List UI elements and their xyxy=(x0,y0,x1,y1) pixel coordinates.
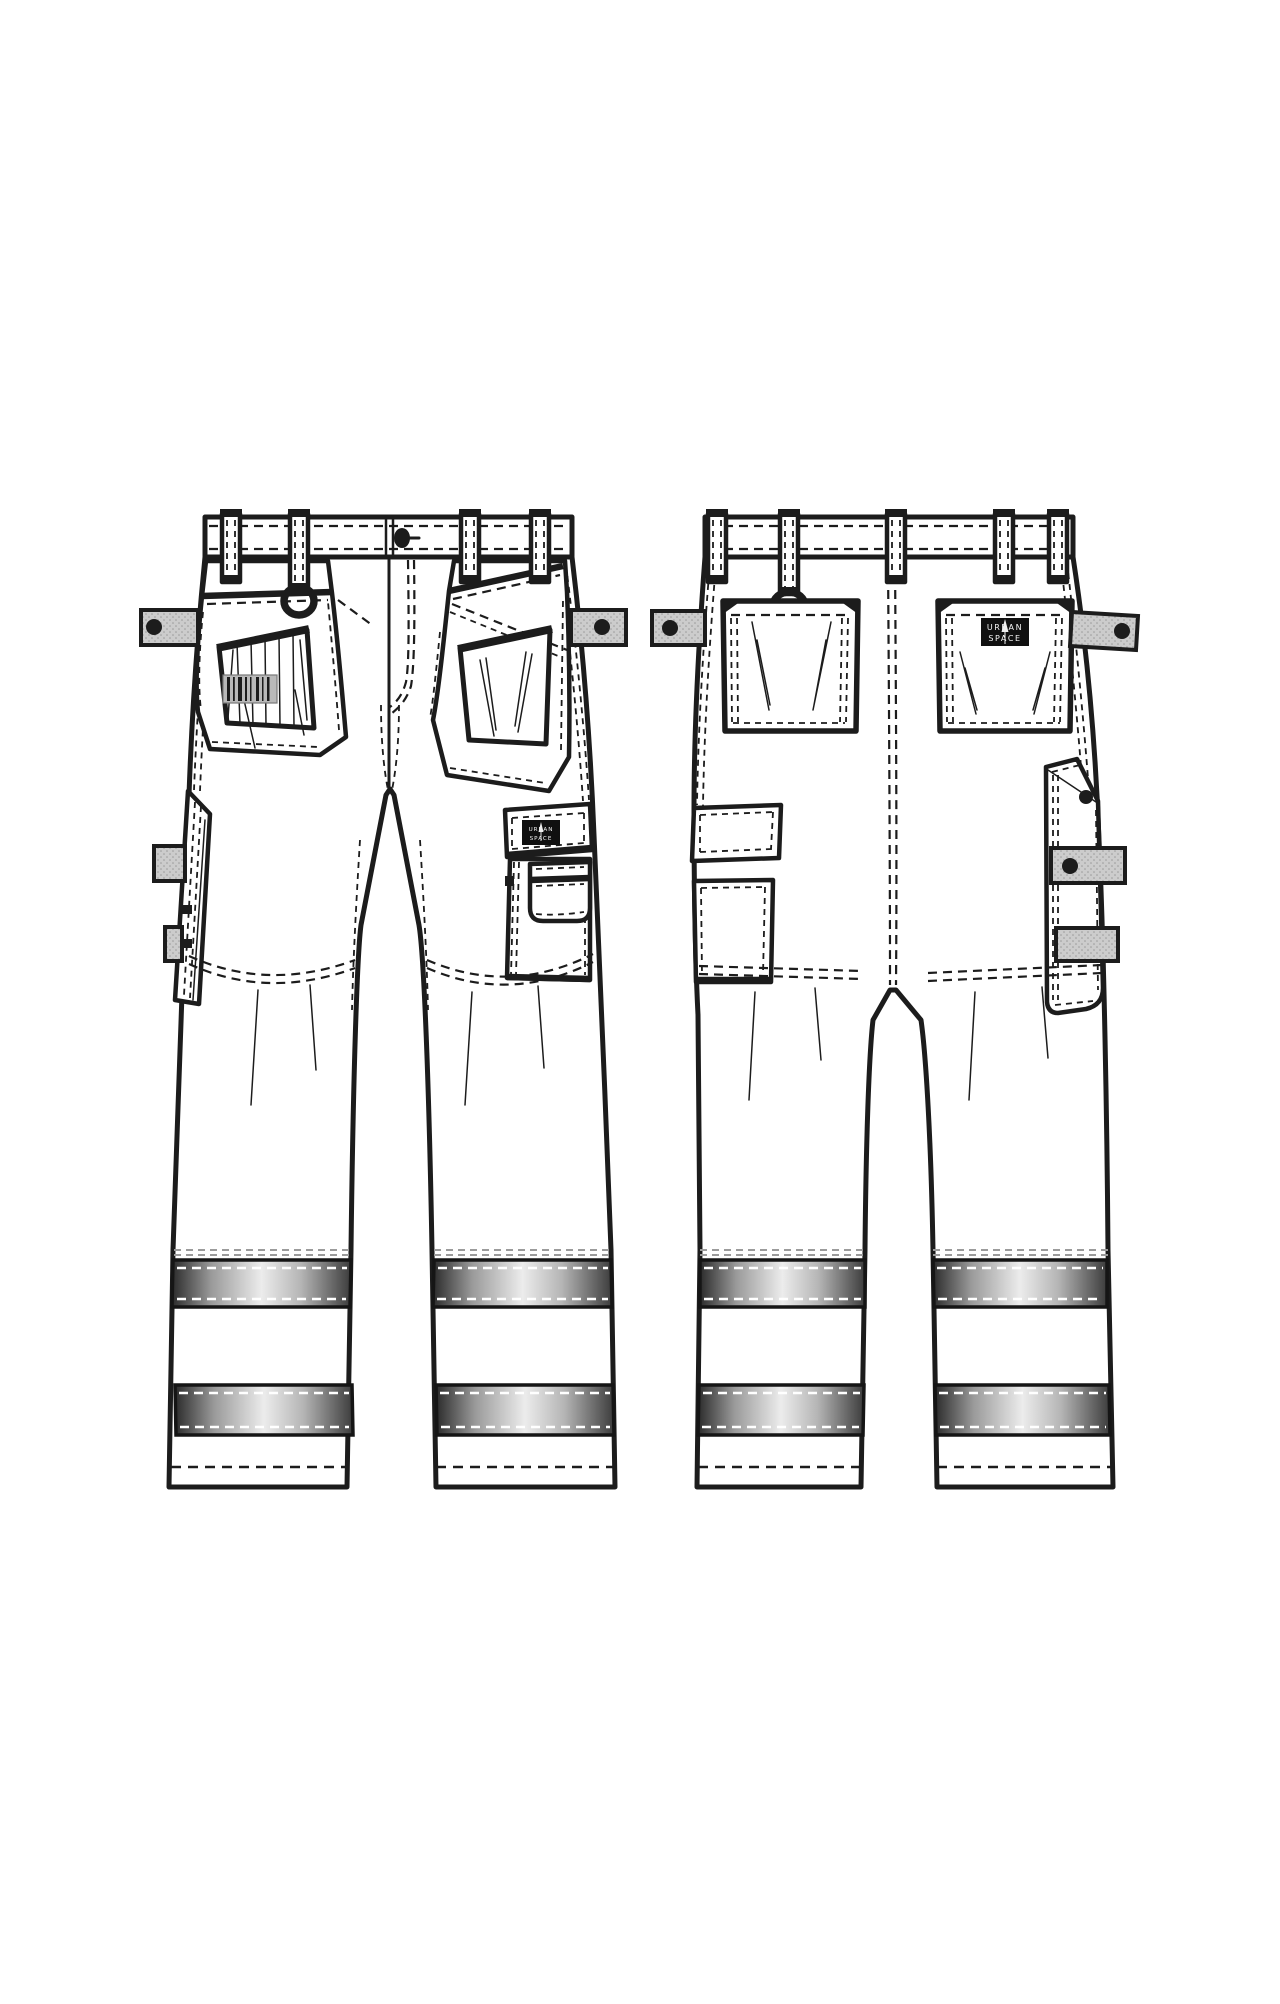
snap-dot xyxy=(1062,858,1078,874)
side-tab-front-right xyxy=(571,610,626,645)
cargo-flap: URBAN SPACE xyxy=(505,804,592,857)
side-tab-small xyxy=(1056,928,1118,961)
front-view: URBAN SPACE xyxy=(141,509,626,1487)
belt-loop-with-dring xyxy=(778,509,800,595)
snap-dot xyxy=(662,620,678,636)
reflective-stripe-lower-back-right xyxy=(935,1385,1110,1435)
phone-pocket xyxy=(530,862,590,921)
reflective-stripe-upper-back-right xyxy=(933,1260,1107,1307)
reflective-stripe-upper-front-left xyxy=(172,1260,351,1307)
side-tab-small xyxy=(154,846,185,881)
side-pocket-back-right xyxy=(1046,759,1125,1013)
snap-dot xyxy=(1114,623,1130,639)
belt-loop xyxy=(220,509,242,583)
reflective-stripe-lower-front-left xyxy=(175,1385,353,1435)
hanging-pocket-right xyxy=(430,561,569,791)
belt-loop-with-dring xyxy=(288,509,310,591)
side-tab-back-left xyxy=(652,611,705,645)
waistband-front xyxy=(205,517,572,557)
reflective-stripe-upper-back-left xyxy=(700,1260,865,1307)
brand-label-back: URBAN SPACE xyxy=(981,618,1029,646)
waist-button xyxy=(394,528,410,548)
loop-notch xyxy=(181,905,192,914)
phone-pocket-flap-edge xyxy=(530,878,590,880)
reflective-stripe-lower-front-right xyxy=(436,1385,614,1435)
pocket-body xyxy=(723,601,858,731)
side-tab-small xyxy=(165,927,182,961)
back-view: URBAN SPACE xyxy=(652,509,1138,1487)
side-tab-back-right xyxy=(1070,612,1138,650)
brand-label-front: URBAN SPACE xyxy=(522,820,560,845)
belt-loop xyxy=(459,509,481,583)
cargo-pocket: URBAN SPACE xyxy=(505,804,592,980)
snap-dot xyxy=(146,619,162,635)
belt-loop xyxy=(885,509,907,583)
back-pocket-left xyxy=(723,601,858,731)
reflective-stripe-upper-front-right xyxy=(433,1260,612,1307)
bartack xyxy=(505,876,514,886)
reflective-stripe-lower-back-left xyxy=(698,1385,864,1435)
side-tab-front-left xyxy=(141,610,198,645)
belt-loop xyxy=(706,509,728,583)
snap-dot xyxy=(1079,790,1093,804)
hammer-loop-panel xyxy=(154,791,210,1004)
back-pocket-right: URBAN SPACE xyxy=(938,601,1072,731)
id-patch xyxy=(223,675,277,703)
snap-dot xyxy=(594,619,610,635)
side-pocket-back-left xyxy=(692,805,781,982)
sketch-page: URBAN SPACE xyxy=(0,0,1280,2004)
belt-loop xyxy=(529,509,551,583)
garment-flat-sketch: URBAN SPACE xyxy=(0,0,1280,2004)
belt-loop xyxy=(993,509,1015,583)
belt-loop xyxy=(1047,509,1069,583)
